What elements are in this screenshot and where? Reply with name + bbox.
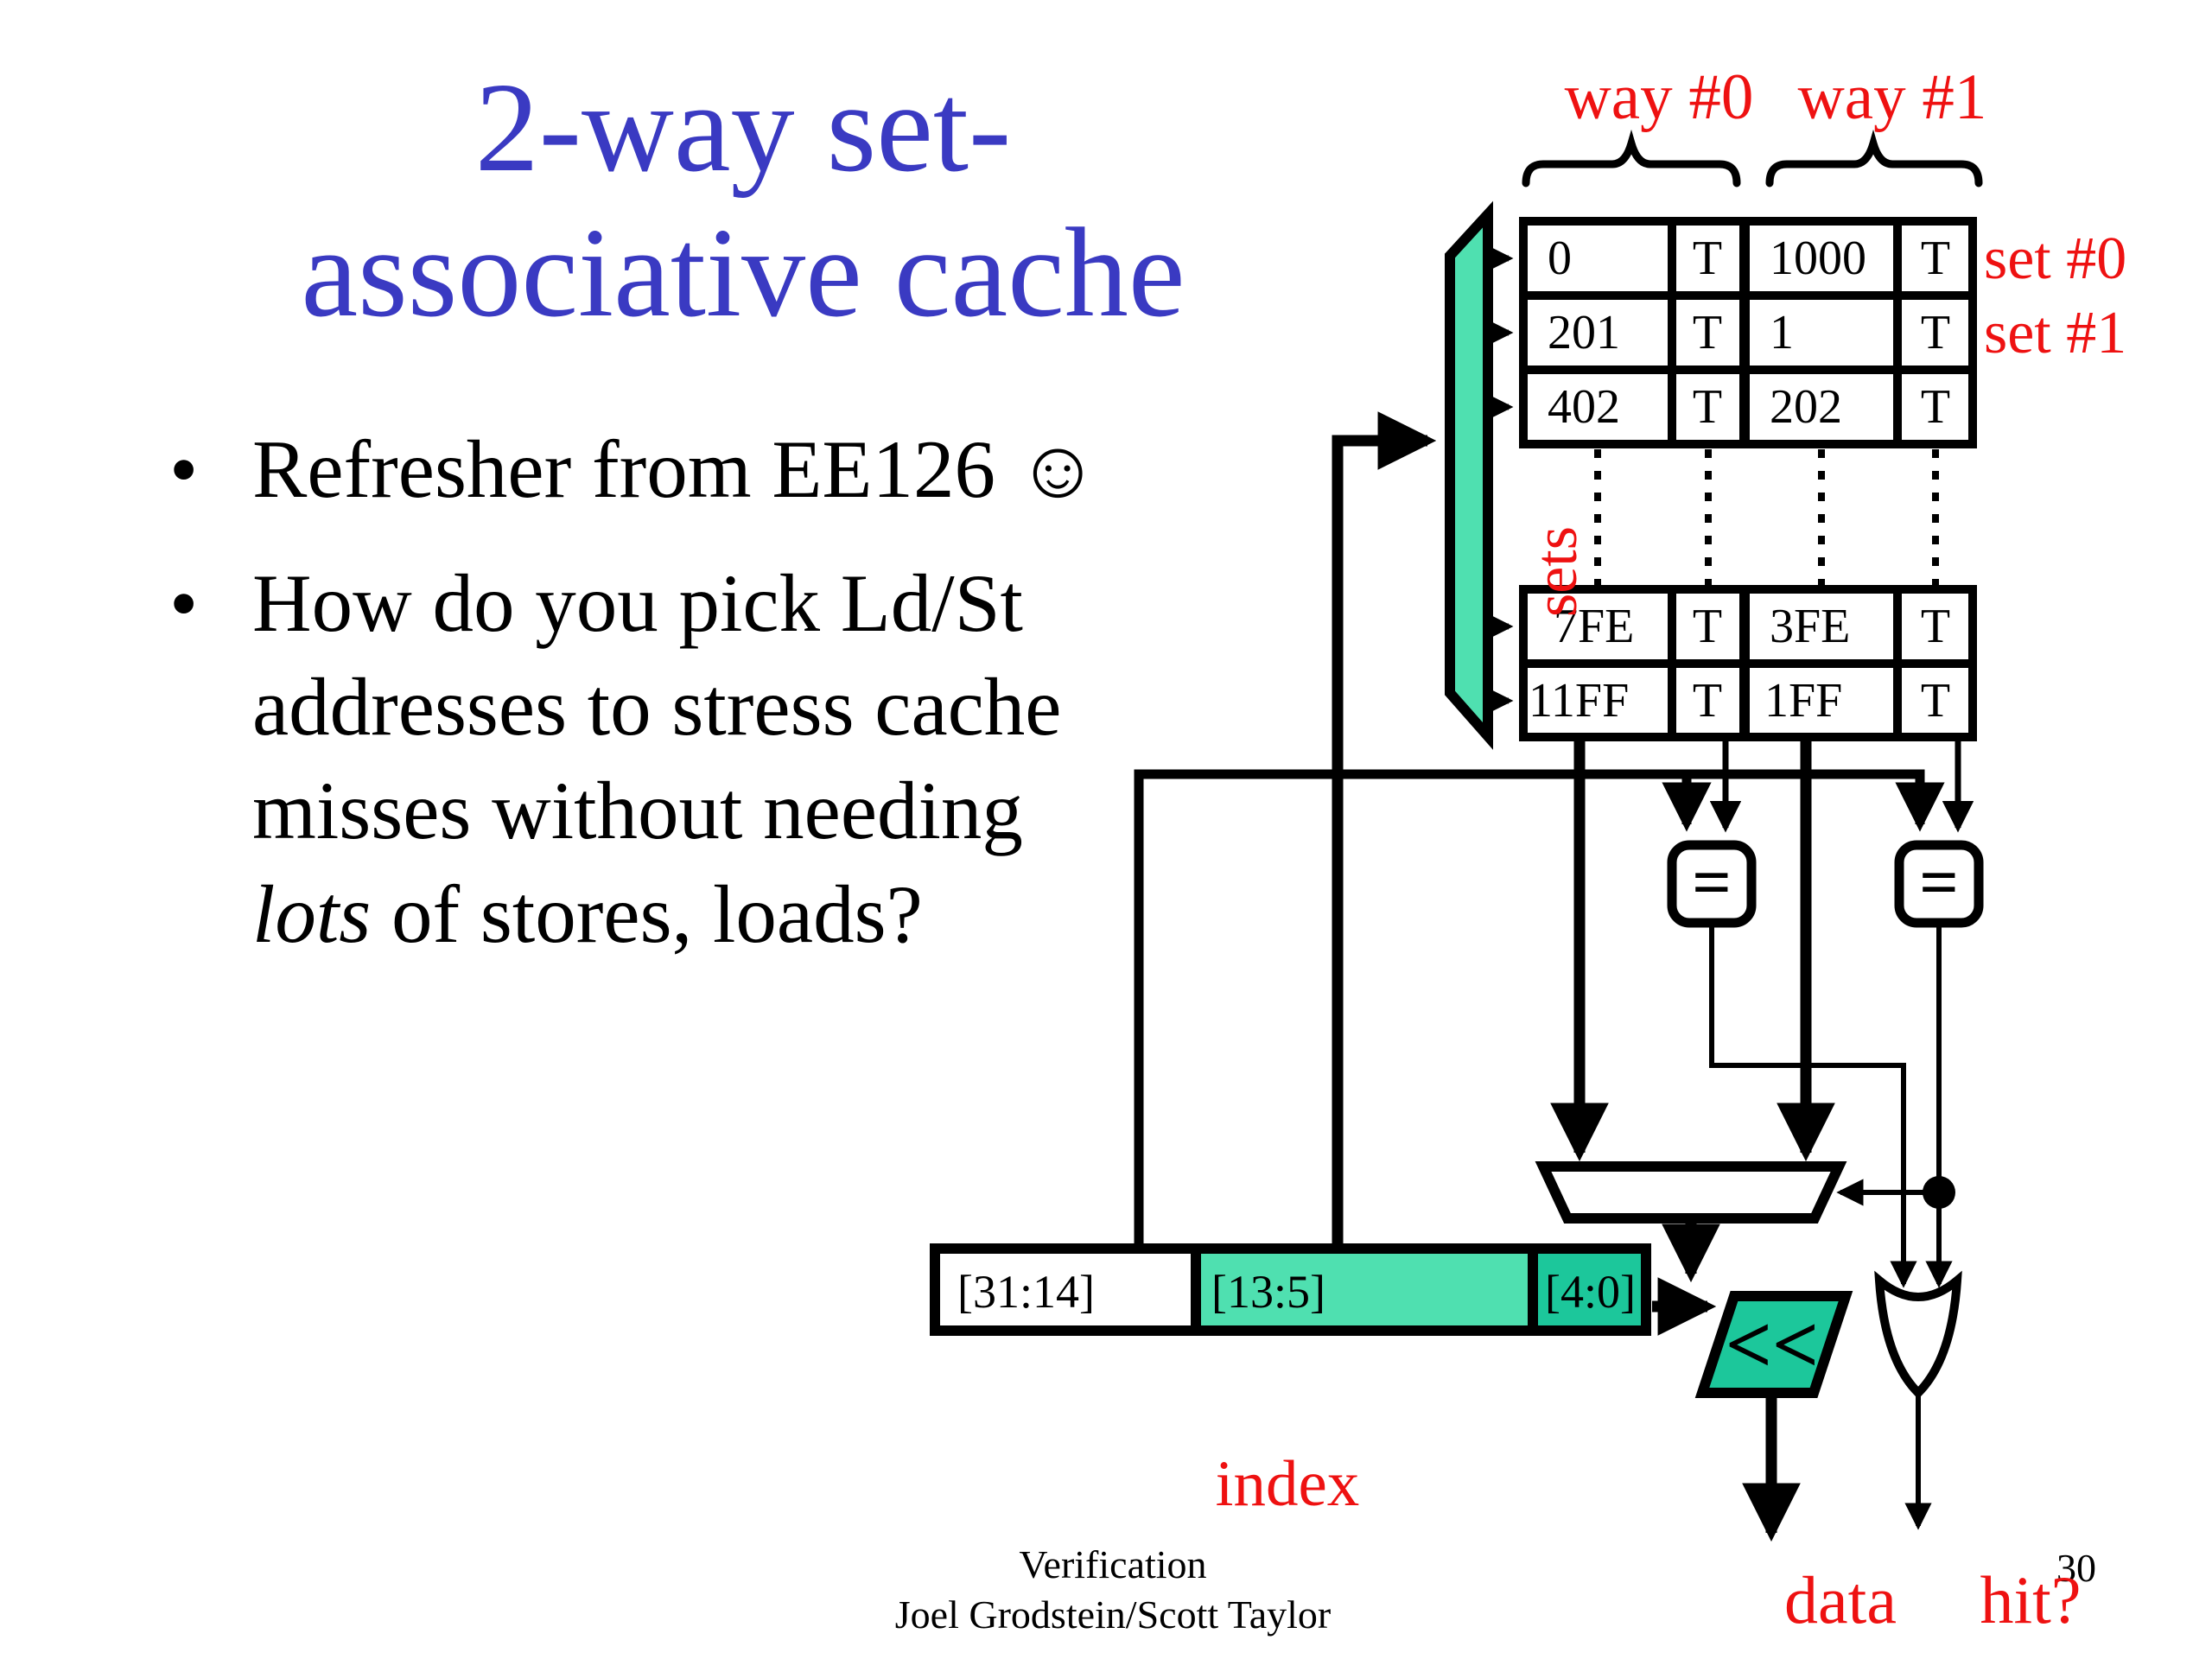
address-field-label: [31:14] [957,1266,1095,1318]
address-field-label: [4:0] [1545,1266,1636,1318]
table-cell-value: T [1921,600,1950,653]
table-cell-value: 402 [1548,380,1620,434]
table-cell-value: T [1693,306,1722,359]
address-field-label: [13:5] [1211,1266,1325,1318]
index-label: index [1216,1448,1360,1520]
table-cell-value: T [1921,380,1950,434]
table-cell-value: 202 [1770,380,1842,434]
index-wire [1338,441,1427,1247]
table-cell-value: T [1921,232,1950,285]
table-cell [1523,221,1672,296]
set1-label: set #1 [1984,300,2126,366]
sets-label: sets [1523,526,1590,617]
table-cell-value: T [1921,674,1950,728]
or-gate [1879,1281,1957,1393]
table-cell-value: T [1693,600,1722,653]
table-cell-value: 1000 [1770,232,1866,285]
table-cell-value: 3FE [1770,600,1850,653]
slide: 2-way set- associative cache • Refresher… [0,0,2212,1659]
way1-label: way #1 [1798,61,1987,133]
way-braces [1526,143,1979,183]
table-cell-value: T [1921,306,1950,359]
table-cell-value: 1 [1770,306,1794,359]
shift-left-icon: << [1726,1299,1819,1390]
table-cell-value: T [1693,380,1722,434]
table-cell-value: T [1693,232,1722,285]
equals-icon: = [1692,845,1732,921]
table-continuation-dots [1598,449,1935,586]
way-mux [1543,1166,1839,1218]
table-cell-value: 11FF [1529,674,1629,728]
way0-brace [1526,143,1737,183]
cache-diagram: 0 T 1000 T 201 T 1 T 402 T 202 T 7FE T 3… [0,0,2212,1659]
way1-brace [1770,143,1979,183]
table-cell-value: 1FF [1764,674,1842,728]
junction-dot [1923,1176,1955,1209]
comparators: = = [1672,845,1979,923]
set-decoder [1450,214,1488,736]
table-cell-value: T [1693,674,1722,728]
set0-label: set #0 [1984,226,2126,292]
equals-icon: = [1919,845,1959,921]
table-cell [1745,296,1897,370]
data-label: data [1784,1562,1897,1637]
way0-label: way #0 [1565,61,1754,133]
hit-label: hit? [1980,1562,2082,1637]
table-cell-value: 0 [1548,232,1572,285]
table-cell-value: 201 [1548,306,1620,359]
